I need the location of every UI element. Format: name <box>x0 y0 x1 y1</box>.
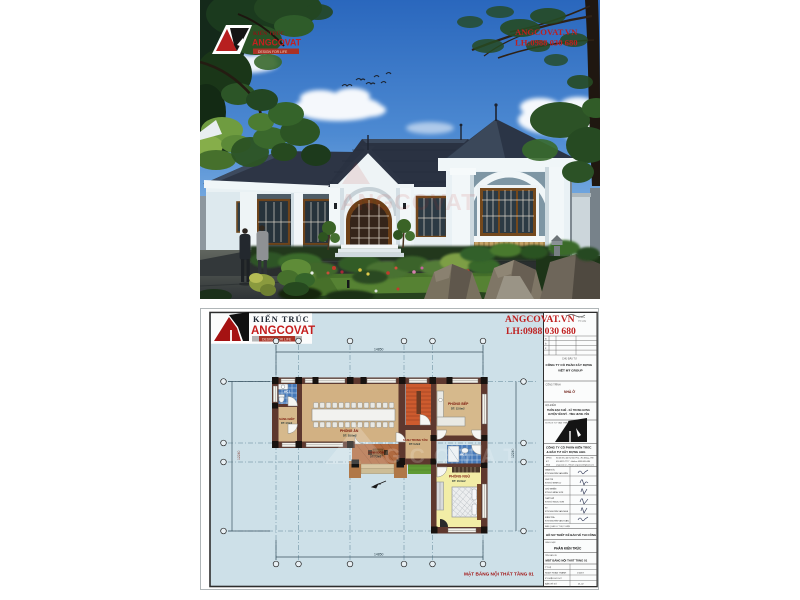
svg-text:ANGCOVAT: ANGCOVAT <box>251 325 315 337</box>
svg-text:angcovat.vn - Email: angcovat@: angcovat.vn - Email: angcovat@gmail.com <box>556 463 594 466</box>
svg-text:KIẾN TRÚC: KIẾN TRÚC <box>253 29 284 37</box>
svg-text:NHÀ Ở: NHÀ Ở <box>564 389 575 394</box>
svg-text:DT: 28.0m2: DT: 28.0m2 <box>343 434 357 438</box>
svg-text:CÔNG TRÌNH: CÔNG TRÌNH <box>546 384 561 387</box>
svg-text:& ĐẦU TƯ XÂY DỰNG AHG: & ĐẦU TƯ XÂY DỰNG AHG <box>547 449 587 454</box>
svg-text:VIỆT MỸ GROUP: VIỆT MỸ GROUP <box>558 368 583 373</box>
svg-text:024.6329.7777 - Hotline 0988.0: 024.6329.7777 - Hotline 0988.030.680 <box>556 460 591 463</box>
svg-text:SẢNH BẾP: SẢNH BẾP <box>279 416 295 421</box>
svg-text:LH:0988 030 680: LH:0988 030 680 <box>515 38 578 48</box>
svg-text:GIAI ĐOẠN: GIAI ĐOẠN <box>545 541 556 544</box>
svg-text:Số 46 Khu đô thị Văn Phú - Hà: Số 46 Khu đô thị Văn Phú - Hà Đông - HN <box>556 457 594 460</box>
svg-text:LH:0988 030 680: LH:0988 030 680 <box>506 326 576 337</box>
svg-text:CHỦ TRÌ: CHỦ TRÌ <box>545 478 554 481</box>
svg-text:ĐỊA ĐIỂM: ĐỊA ĐIỂM <box>546 404 557 407</box>
svg-text:CHỦ NHIỆM: CHỦ NHIỆM <box>545 488 557 491</box>
svg-text:CÔNG TY CỔ PHẦN XÂY DỰNG: CÔNG TY CỔ PHẦN XÂY DỰNG <box>546 362 593 367</box>
svg-text:MẶT BẰNG NỘI THẤT TẦNG 01: MẶT BẰNG NỘI THẤT TẦNG 01 <box>546 558 588 563</box>
svg-text:SẢNH ĐÓN: SẢNH ĐÓN <box>368 450 384 455</box>
svg-text:ANGCOVAT.VN: ANGCOVAT.VN <box>515 27 578 37</box>
svg-text:KÝ HIỆU HỒ SƠ: KÝ HIỆU HỒ SƠ <box>545 577 562 580</box>
svg-text:DT: 16.0m2: DT: 16.0m2 <box>452 479 466 483</box>
svg-text:KTS NGUYỄN VĂN TUẤN: KTS NGUYỄN VĂN TUẤN <box>545 520 569 523</box>
svg-text:HUYỆN YÊN MỸ - TỈNH HƯNG YÊN: HUYỆN YÊN MỸ - TỈNH HƯNG YÊN <box>548 413 589 416</box>
svg-text:BẢN QUẢN LÝ THỰC HIỆN: BẢN QUẢN LÝ THỰC HIỆN <box>545 525 571 528</box>
svg-text:PHÒNG NGỦ: PHÒNG NGỦ <box>449 474 470 479</box>
svg-text:TÊN BẢN VẼ: TÊN BẢN VẼ <box>545 554 558 557</box>
svg-text:THÔN ĐẠO KHÊ - XÃ TRUNG HƯNG: THÔN ĐẠO KHÊ - XÃ TRUNG HƯNG <box>547 409 590 412</box>
svg-text:VPGD: VPGD <box>546 458 552 460</box>
svg-text:CÔNG TY CỔ PHẦN KIẾN TRÚC: CÔNG TY CỔ PHẦN KIẾN TRÚC <box>546 445 592 450</box>
svg-text:KIỂM TRA: KIỂM TRA <box>545 516 555 519</box>
svg-text:KIẾN TRÚC: KIẾN TRÚC <box>253 314 310 324</box>
svg-text:GIÁM ĐỐC: GIÁM ĐỐC <box>545 469 556 472</box>
svg-text:ANGCOVAT: ANGCOVAT <box>340 189 476 215</box>
svg-text:KTS NGUYỄN VĂN KIÊN: KTS NGUYỄN VĂN KIÊN <box>545 472 568 475</box>
svg-text:14850: 14850 <box>374 553 384 557</box>
svg-text:PHẦN KIẾN TRÚC: PHẦN KIẾN TRÚC <box>554 546 582 551</box>
svg-text:KTS ĐỖ MINH SƠN: KTS ĐỖ MINH SƠN <box>545 491 564 494</box>
svg-text:THIẾT KẾ: THIẾT KẾ <box>545 497 555 500</box>
svg-text:WC 2: WC 2 <box>460 452 467 456</box>
svg-text:1/2019: 1/2019 <box>577 573 584 575</box>
svg-text:NGÀY HOÀN THÀNH: NGÀY HOÀN THÀNH <box>545 572 567 575</box>
svg-text:khô giây: khô giây <box>578 321 587 323</box>
svg-text:ANGCOVAT: ANGCOVAT <box>252 38 302 48</box>
svg-text:KTS NGUYỄN VĂN NGHI: KTS NGUYỄN VĂN NGHI <box>545 510 569 513</box>
svg-text:HỒ SƠ THIẾT KẾ BẢN VẼ THI CÔNG: HỒ SƠ THIẾT KẾ BẢN VẼ THI CÔNG <box>546 532 597 537</box>
svg-text:DT: 12.0m2: DT: 12.0m2 <box>451 407 465 411</box>
svg-text:01-02: 01-02 <box>578 584 584 586</box>
svg-text:ANGCOVAT: ANGCOVAT <box>336 445 525 468</box>
svg-text:DESIGN FOR LIFE: DESIGN FOR LIFE <box>258 50 288 54</box>
svg-text:PHÒNG BẾP: PHÒNG BẾP <box>448 401 469 406</box>
svg-text:CHỦ ĐẦU TƯ: CHỦ ĐẦU TƯ <box>562 358 577 361</box>
svg-text:14850: 14850 <box>374 348 384 352</box>
svg-text:MẶT BẰNG NỘI THẤT TẦNG 01: MẶT BẰNG NỘI THẤT TẦNG 01 <box>464 570 534 577</box>
svg-text:ANGCOVAT.VN: ANGCOVAT.VN <box>505 314 575 325</box>
svg-text:B: B <box>379 482 381 486</box>
svg-text:BẢN VẼ SỐ: BẢN VẼ SỐ <box>545 583 557 586</box>
svg-text:DT: 7.2m2: DT: 7.2m2 <box>370 456 382 459</box>
svg-text:DT: 6.2m2: DT: 6.2m2 <box>409 443 421 446</box>
svg-text:WC 1: WC 1 <box>284 390 291 394</box>
svg-text:DT: 4.5m2: DT: 4.5m2 <box>281 422 293 425</box>
svg-text:TỶ LỆ: TỶ LỆ <box>545 566 552 569</box>
svg-text:PHÒNG ĂN: PHÒNG ĂN <box>340 428 359 433</box>
svg-text:KTS ĐỖ ĐÌNH LỰ: KTS ĐỖ ĐÌNH LỰ <box>545 482 562 485</box>
svg-text:KTS ĐỖ NGỌC SƠN: KTS ĐỖ NGỌC SƠN <box>545 501 565 504</box>
svg-text:12240: 12240 <box>237 450 241 460</box>
svg-text:sô hiêu: sô hiêu <box>578 317 586 319</box>
